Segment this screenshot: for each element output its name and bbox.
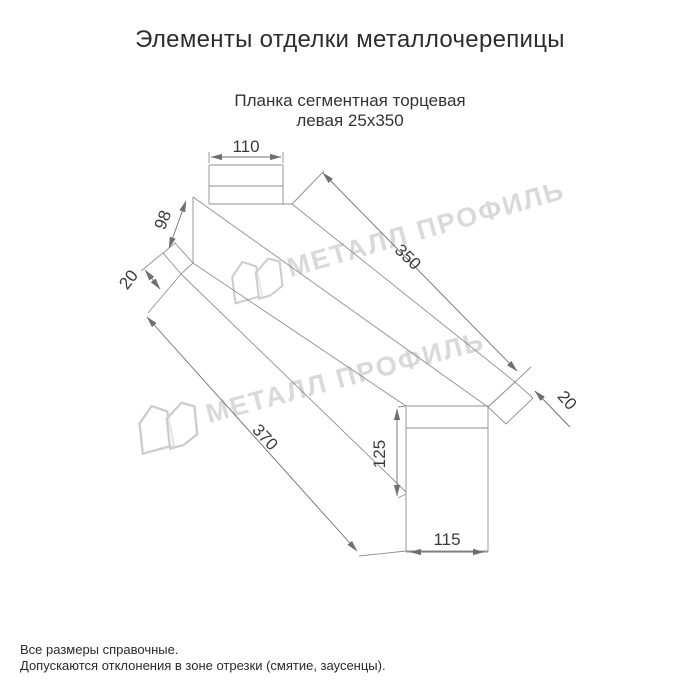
dim-value: 20 [554, 387, 581, 414]
watermark-lower: МЕТАЛЛ ПРОФИЛЬ [132, 318, 491, 455]
dim-value: 20 [115, 266, 142, 293]
metalprofil-logo-icon [225, 252, 288, 305]
footnote-line-2: Допускаются отклонения в зоне отрезки (с… [20, 658, 386, 674]
dim-right-hem-20: 20 [535, 387, 580, 427]
dim-value: 98 [151, 208, 176, 233]
footnote-line-1: Все размеры справочные. [20, 642, 386, 658]
technical-drawing: МЕТАЛЛ ПРОФИЛЬ МЕТАЛЛ ПРОФИЛЬ [0, 0, 700, 700]
right-cut-hem-fold [488, 382, 533, 424]
metalprofil-logo-icon [132, 395, 204, 456]
watermark-text: МЕТАЛЛ ПРОФИЛЬ [284, 175, 569, 283]
footnotes: Все размеры справочные. Допускаются откл… [20, 642, 386, 674]
watermark-upper: МЕТАЛЛ ПРОФИЛЬ [225, 171, 570, 305]
dim-left-hem-20: 20 [115, 266, 160, 293]
watermark-text: МЕТАЛЛ ПРОФИЛЬ [203, 326, 488, 429]
drawing-page: Элементы отделки металлочерепицы Планка … [0, 0, 700, 700]
dim-left-face-98: 98 [151, 201, 186, 248]
dim-value: 370 [248, 420, 281, 454]
dim-value: 125 [370, 440, 389, 468]
dim-value: 110 [232, 137, 259, 156]
dim-value: 115 [433, 530, 460, 549]
dim-end-width-115: 115 [406, 530, 488, 552]
top-flange [209, 165, 292, 204]
dim-top-flange-110: 110 [209, 137, 283, 163]
dim-end-height-125: 125 [370, 406, 406, 498]
